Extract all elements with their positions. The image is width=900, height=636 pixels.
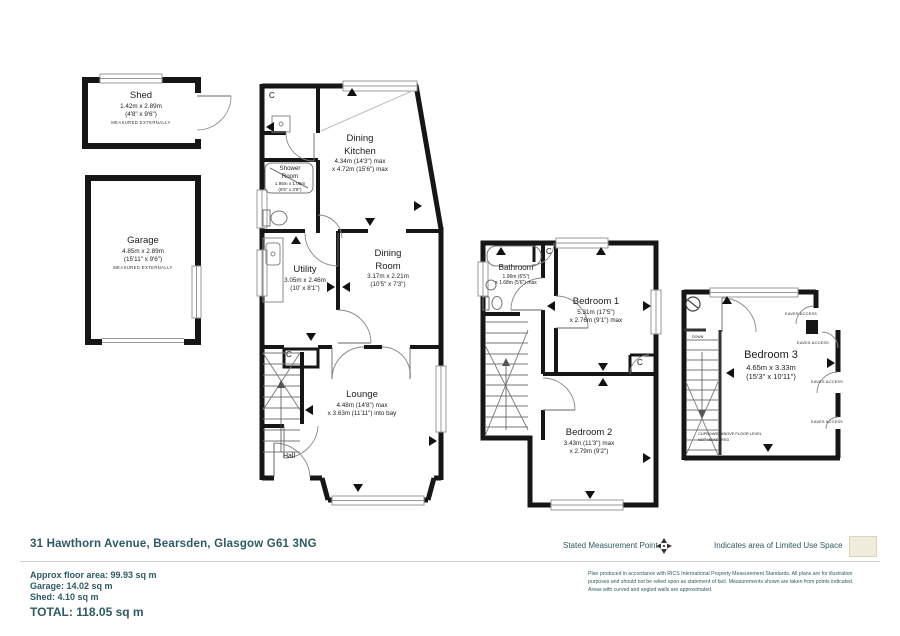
room-dims: (10' x 8'1"): [284, 285, 326, 293]
eaves-access-label: EAVES ACCESS: [811, 379, 843, 384]
stairs-down-label: DOWN: [692, 335, 703, 339]
eaves-access-label: EAVES ACCESS: [811, 419, 843, 424]
cupboard-note-line: NOT MEASURED: [698, 437, 762, 443]
room-label-lounge: Lounge 4.48m (14'8") max x 3.63m (11'11"…: [328, 389, 397, 418]
room-name: Garage: [113, 235, 172, 248]
cupboard-label: C: [637, 358, 643, 367]
eaves-access-label: EAVES ACCESS: [785, 311, 817, 316]
room-dims-imperial: (4'8" x 9'6"): [111, 111, 170, 119]
room-name: Room: [275, 173, 305, 181]
room-name: Bathroom: [495, 263, 537, 274]
room-name: Kitchen: [332, 146, 388, 159]
first-floor-stairs: [485, 322, 528, 436]
room-dims: x 3.63m (11'11") into bay: [328, 410, 397, 418]
room-label-shower-room: Shower Room 1.95m x 1.06m (6'5" x 3'6"): [275, 165, 305, 194]
garage-door: [102, 336, 184, 345]
room-name: Bedroom 3: [744, 348, 798, 363]
room-dims: (10'5" x 7'3"): [367, 281, 409, 289]
disclaimer-line: Plan produced in accordance with RICS In…: [588, 571, 882, 579]
legend-limited-use-label: Indicates area of Limited Use Space: [714, 541, 843, 550]
room-dims: 1.96m (6'5"): [495, 274, 537, 281]
room-label-garage: Garage 4.85m x 2.89m (15'11" x 9'6") MEA…: [113, 235, 172, 271]
cupboard-label: C: [546, 247, 552, 256]
floor-area-line: Approx floor area: 99.93 sq m: [30, 570, 157, 580]
limited-use-swatch: [849, 536, 877, 557]
property-address: 31 Hawthorn Avenue, Bearsden, Glasgow G6…: [30, 538, 317, 550]
disclaimer-line: purposes and should not be relied upon a…: [588, 579, 882, 587]
shed-window: [100, 74, 162, 83]
room-label-bedroom1: Bedroom 1 5.31m (17'5") x 2.76m (9'1") m…: [570, 296, 622, 325]
second-floor-window: [710, 288, 798, 297]
room-dims-metric: 4.85m x 2.89m: [113, 248, 172, 256]
room-dims: (15'3" x 10'11"): [744, 372, 798, 382]
room-dims: 4.65m x 3.33m: [744, 363, 798, 373]
room-name: Bedroom 2: [564, 427, 615, 440]
front-door: [274, 443, 310, 483]
room-name: Room: [367, 261, 409, 274]
room-name: Shower: [275, 165, 305, 173]
room-name: Utility: [284, 264, 326, 277]
shed-area-line: Shed: 4.10 sq m: [30, 592, 157, 602]
room-label-shed: Shed 1.42m x 2.89m (4'8" x 9'6") MEASURE…: [111, 90, 170, 126]
room-dims-imperial: (15'11" x 9'6"): [113, 256, 172, 264]
room-dims: x 1.68m (5'6") max: [495, 280, 537, 287]
room-dims: 3.43m (11'3") max: [564, 440, 615, 448]
room-label-bedroom3: Bedroom 3 4.65m x 3.33m (15'3" x 10'11"): [744, 348, 798, 382]
room-dims: 4.34m (14'3") max: [332, 158, 388, 166]
eaves-access-label: EAVES ACCESS: [797, 340, 829, 345]
room-label-bedroom2: Bedroom 2 3.43m (11'3") max x 2.79m (9'2…: [564, 427, 615, 456]
room-dims: (6'5" x 3'6"): [275, 187, 305, 193]
floorplan-page: Shed 1.42m x 2.89m (4'8" x 9'6") MEASURE…: [0, 0, 900, 636]
cupboard-label: C: [286, 350, 292, 359]
soil-pipe-symbol: [686, 297, 700, 311]
room-dims: 4.48m (14'8") max: [328, 402, 397, 410]
measurement-point-icon: [656, 538, 672, 554]
room-dims: 3.05m x 2.46m: [284, 277, 326, 285]
room-label-utility: Utility 3.05m x 2.46m (10' x 8'1"): [284, 264, 326, 293]
room-name: Hall: [283, 452, 295, 461]
garage-window: [192, 266, 201, 318]
floor-areas: Approx floor area: 99.93 sq m Garage: 14…: [30, 570, 157, 620]
room-dims: x 2.76m (9'1") max: [570, 317, 622, 325]
room-label-bathroom: Bathroom 1.96m (6'5") x 1.68m (5'6") max: [495, 263, 537, 287]
room-dims-metric: 1.42m x 2.89m: [111, 103, 170, 111]
room-note: MEASURED EXTERNALLY: [111, 120, 170, 126]
room-name: Bedroom 1: [570, 296, 622, 309]
kitchen-ceiling-line: [321, 91, 412, 131]
garage-area-line: Garage: 14.02 sq m: [30, 581, 157, 591]
room-name: Dining: [367, 248, 409, 261]
disclaimer-line: Areas with curved and angled walls are a…: [588, 587, 882, 595]
room-label-hall: Hall: [283, 452, 295, 461]
footer-divider: [20, 561, 880, 562]
cupboard-note: CUPBOARD ABOVE FLOOR LEVEL NOT MEASURED: [698, 431, 762, 444]
eaves-wall-stub: [806, 320, 818, 334]
room-note: MEASURED EXTERNALLY: [113, 265, 172, 271]
total-area-line: TOTAL: 118.05 sq m: [30, 605, 157, 619]
room-name: Dining: [332, 133, 388, 146]
disclaimer-text: Plan produced in accordance with RICS In…: [588, 571, 882, 594]
cupboard-label: C: [269, 91, 275, 100]
room-dims: 3.17m x 2.21m: [367, 273, 409, 281]
room-dims: x 4.72m (15'6") max: [332, 166, 388, 174]
hall-fixture: [272, 116, 290, 132]
room-dims: 5.31m (17'5"): [570, 309, 622, 317]
room-name: Lounge: [328, 389, 397, 402]
room-label-dining-kitchen: Dining Kitchen 4.34m (14'3") max x 4.72m…: [332, 133, 388, 175]
room-label-dining-room: Dining Room 3.17m x 2.21m (10'5" x 7'3"): [367, 248, 409, 290]
legend-measurement-point-label: Stated Measurement Point: [563, 541, 658, 550]
shed-door: [193, 93, 231, 139]
room-dims: x 2.79m (9'2"): [564, 448, 615, 456]
room-name: Shed: [111, 90, 170, 103]
